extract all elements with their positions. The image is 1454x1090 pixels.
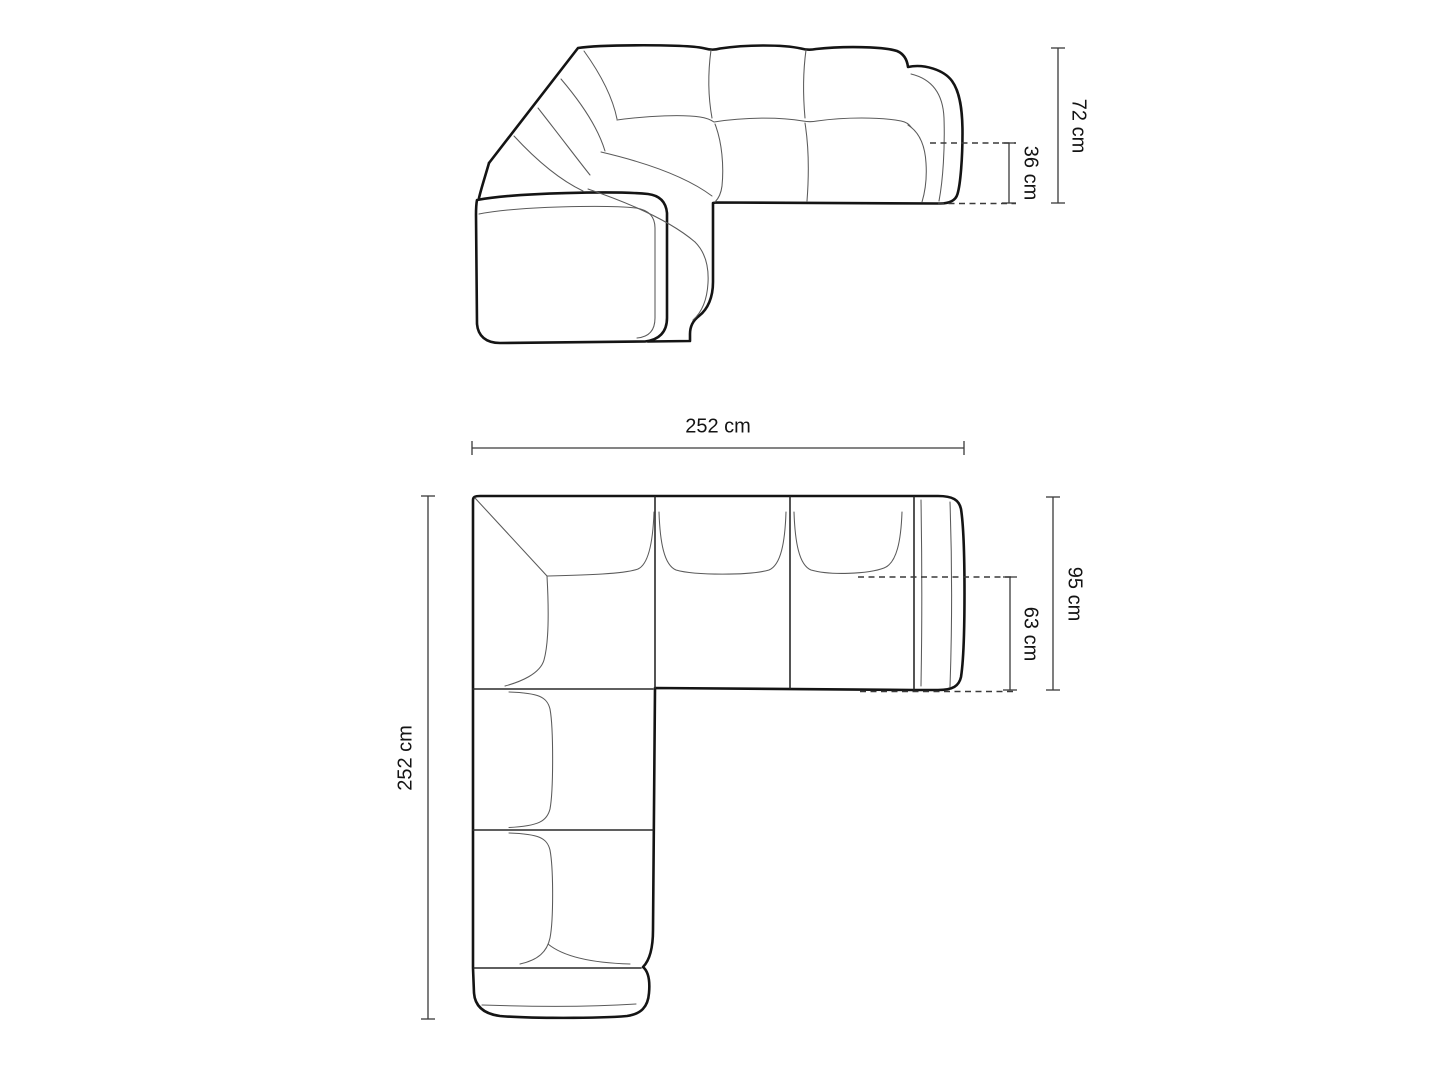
elevation-seat-cushion-left-bulge xyxy=(715,124,723,202)
dimension-seat-depth: 63 cm xyxy=(1003,577,1042,690)
dimension-overall-height: 72 cm xyxy=(1051,48,1090,203)
dimension-overall-width: 252 cm xyxy=(472,415,964,455)
plan-right-armrest-seam-1 xyxy=(921,500,922,686)
plan-cushion-h2 xyxy=(659,512,786,574)
elevation-back-seat-seam xyxy=(617,116,911,127)
plan-cushion-v3 xyxy=(509,833,553,964)
dimension-label-95: 95 cm xyxy=(1064,567,1086,621)
elevation-left-edge xyxy=(479,163,489,198)
dimension-label-72: 72 cm xyxy=(1068,99,1090,153)
elevation-right-armrest-seam-1 xyxy=(911,74,944,201)
elevation-corner-seat-top xyxy=(588,189,695,242)
elevation-seat-cushion-divider xyxy=(805,123,808,201)
plan-cushion-v2 xyxy=(509,692,553,828)
dimension-overall-depth: 252 cm xyxy=(394,496,435,1019)
elevation-right-armrest-seam-2 xyxy=(908,125,926,202)
elevation-corner-channel-sweep xyxy=(601,152,712,196)
dimension-seat-height: 36 cm xyxy=(1002,143,1042,203)
technical-drawing-canvas: 72 cm 36 cm xyxy=(0,0,1454,1090)
plan-view: 252 cm 252 cm 95 cm 63 cm xyxy=(394,415,1085,1019)
elevation-view: 72 cm 36 cm xyxy=(476,45,1090,343)
elevation-back-rib-1 xyxy=(584,51,617,119)
dimension-side-depth: 95 cm xyxy=(1046,497,1086,690)
elevation-armrest-inner-seam xyxy=(479,206,655,338)
dimension-label-252-width: 252 cm xyxy=(685,415,751,437)
plan-corner-cushion-front-right xyxy=(547,512,654,576)
sofa-dimension-diagram: 72 cm 36 cm xyxy=(0,0,1454,1090)
elevation-front-armrest xyxy=(476,193,667,343)
elevation-back-cushion-divider-1 xyxy=(709,50,712,118)
elevation-back-rib-2 xyxy=(561,79,605,151)
elevation-back-rib-4 xyxy=(514,136,583,191)
plan-right-armrest-seam-2 xyxy=(950,502,952,687)
plan-corner-cushion-front-down xyxy=(505,576,548,686)
dimension-label-36: 36 cm xyxy=(1020,146,1042,200)
plan-bottom-armrest-seam xyxy=(482,1004,636,1006)
plan-cushion-v3-front-sweep xyxy=(548,944,630,964)
dimension-label-252-depth: 252 cm xyxy=(394,725,416,791)
elevation-back-rib-3 xyxy=(538,108,590,175)
plan-cushion-h3 xyxy=(794,512,902,573)
elevation-back-cushion-divider-2 xyxy=(804,50,806,118)
dimension-label-63: 63 cm xyxy=(1020,607,1042,661)
plan-corner-diagonal xyxy=(475,498,547,576)
